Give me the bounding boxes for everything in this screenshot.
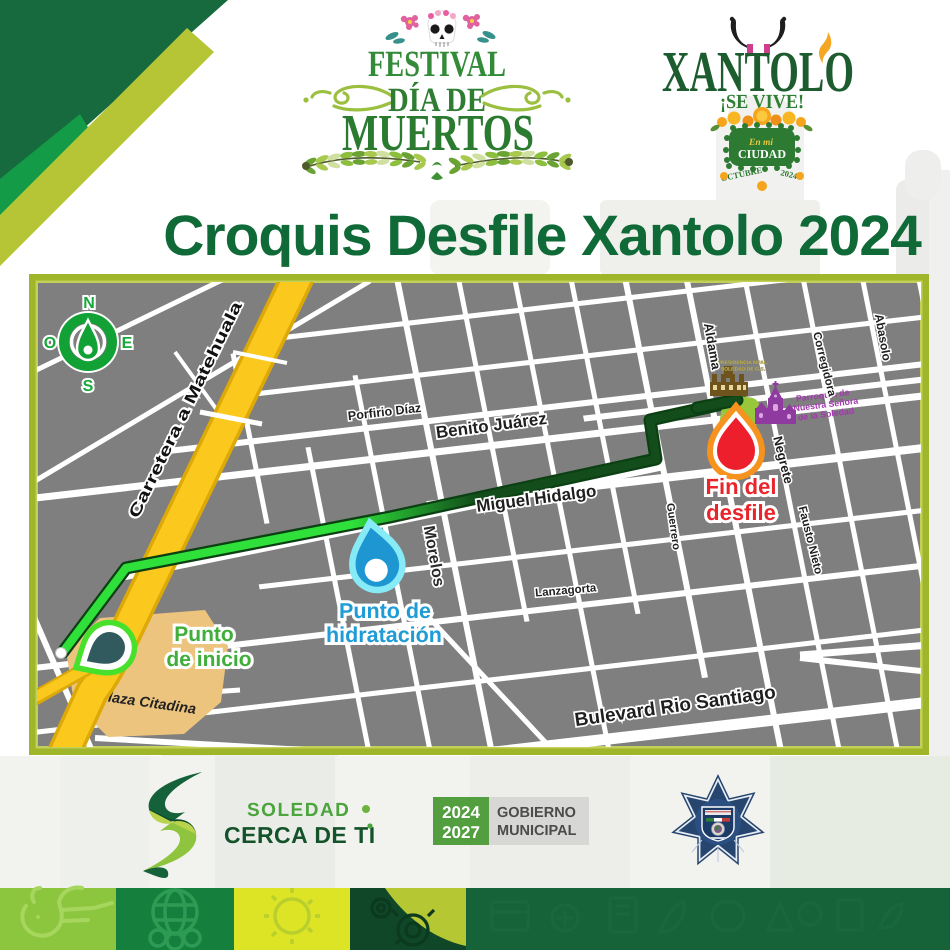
svg-text:Punto: Punto <box>174 623 233 646</box>
svg-text:GOBIERNO: GOBIERNO <box>497 805 576 821</box>
svg-text:Punto de: Punto de <box>339 599 431 623</box>
svg-text:Fin del: Fin del <box>706 474 777 499</box>
svg-text:SOLEDAD DE G.S.: SOLEDAD DE G.S. <box>721 367 766 373</box>
svg-text:E: E <box>122 335 133 352</box>
svg-text:desfile: desfile <box>706 500 776 525</box>
svg-text:PRESIDENCIA MPAL.: PRESIDENCIA MPAL. <box>718 360 769 366</box>
svg-text:S: S <box>83 378 94 395</box>
svg-text:N: N <box>83 295 95 312</box>
svg-text:MUNICIPAL: MUNICIPAL <box>497 823 577 839</box>
svg-text:SOLEDAD: SOLEDAD <box>247 800 350 821</box>
svg-text:2024: 2024 <box>442 803 480 822</box>
svg-text:CIUDAD: CIUDAD <box>738 147 786 161</box>
svg-text:CERCA DE TI: CERCA DE TI <box>224 822 376 848</box>
svg-text:O: O <box>44 335 56 352</box>
svg-text:2027: 2027 <box>442 823 480 842</box>
svg-text:hidratación: hidratación <box>326 623 442 647</box>
svg-text:de inicio: de inicio <box>166 648 251 671</box>
svg-text:FESTIVAL: FESTIVAL <box>368 44 506 85</box>
svg-text:Croquis Desfile Xantolo 2024: Croquis Desfile Xantolo 2024 <box>163 204 922 268</box>
